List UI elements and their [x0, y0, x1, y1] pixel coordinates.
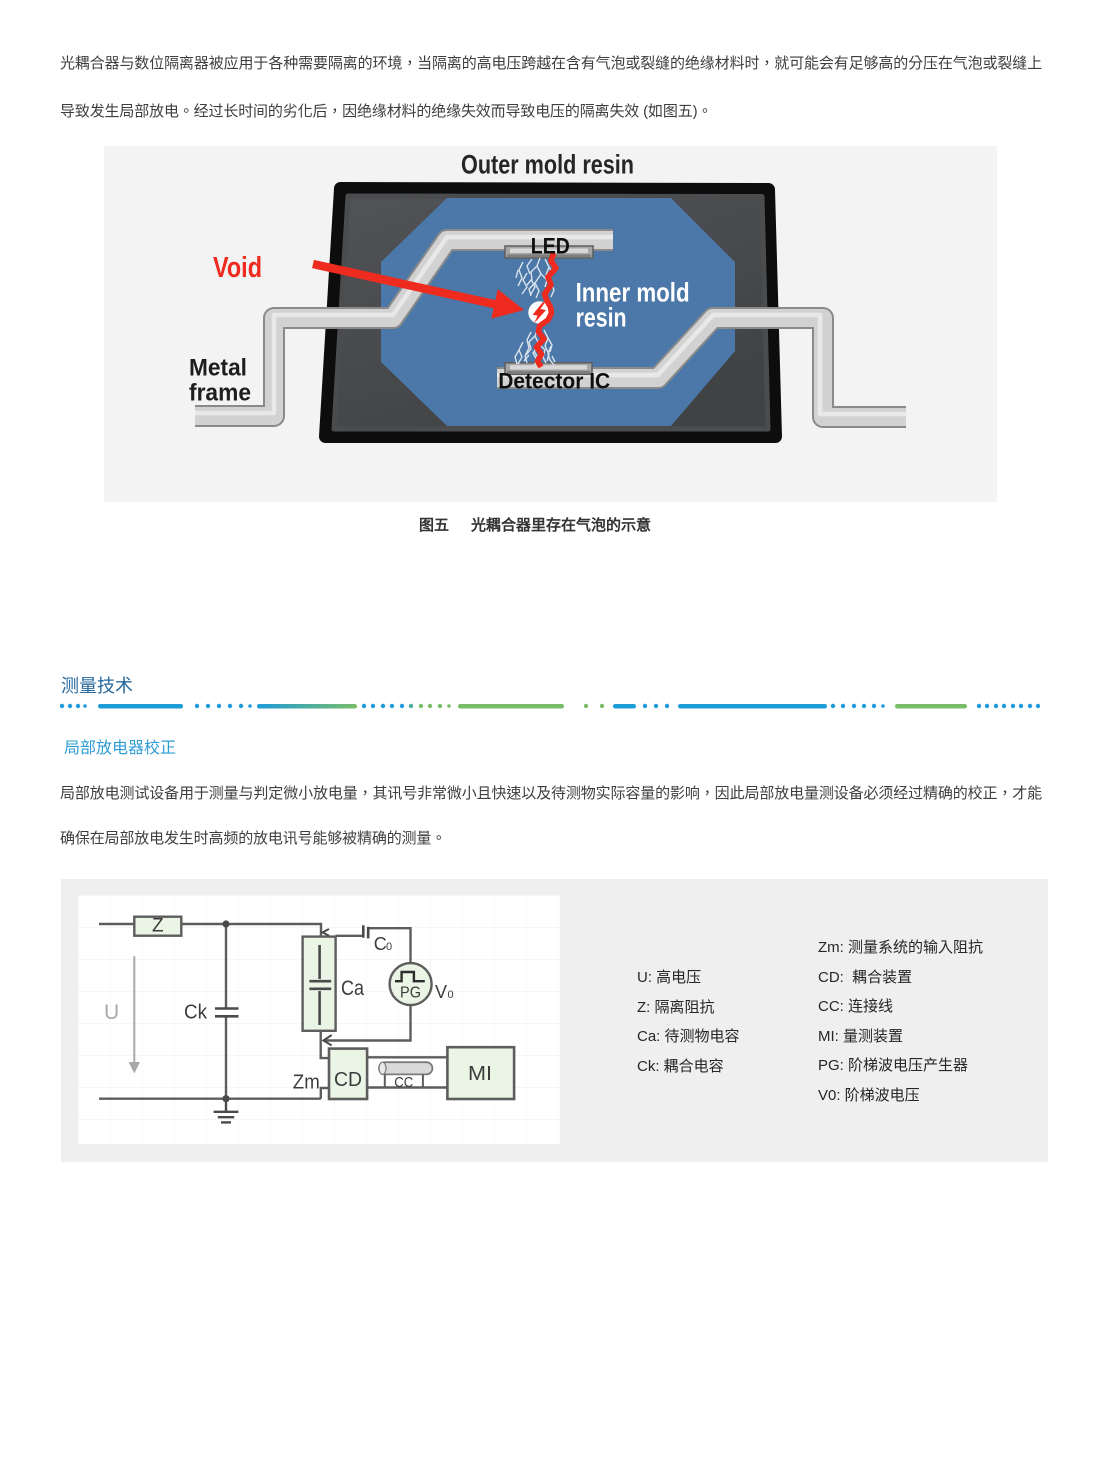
svg-text:U: U [104, 1001, 119, 1024]
svg-text:MI: MI [468, 1063, 492, 1085]
svg-text:CD: CD [334, 1069, 362, 1091]
svg-text:Detector IC: Detector IC [498, 368, 610, 393]
svg-text:frame: frame [189, 379, 251, 406]
svg-text:Z: Z [152, 916, 164, 937]
svg-text:PG: PG [400, 985, 421, 1002]
svg-text:Ca: Ca [341, 977, 364, 1000]
svg-text:0: 0 [448, 989, 454, 1001]
svg-text:Zm: Zm [293, 1072, 320, 1094]
svg-text:CC: CC [394, 1074, 413, 1091]
svg-text:Outer mold resin: Outer mold resin [461, 150, 634, 180]
svg-text:C: C [374, 934, 387, 954]
svg-text:V: V [435, 982, 447, 1002]
svg-text:LED: LED [531, 234, 570, 259]
svg-text:resin: resin [576, 303, 627, 333]
svg-text:Void: Void [213, 252, 262, 284]
svg-text:0: 0 [386, 941, 392, 953]
svg-text:Metal: Metal [189, 355, 247, 382]
svg-text:Ck: Ck [184, 1001, 208, 1023]
